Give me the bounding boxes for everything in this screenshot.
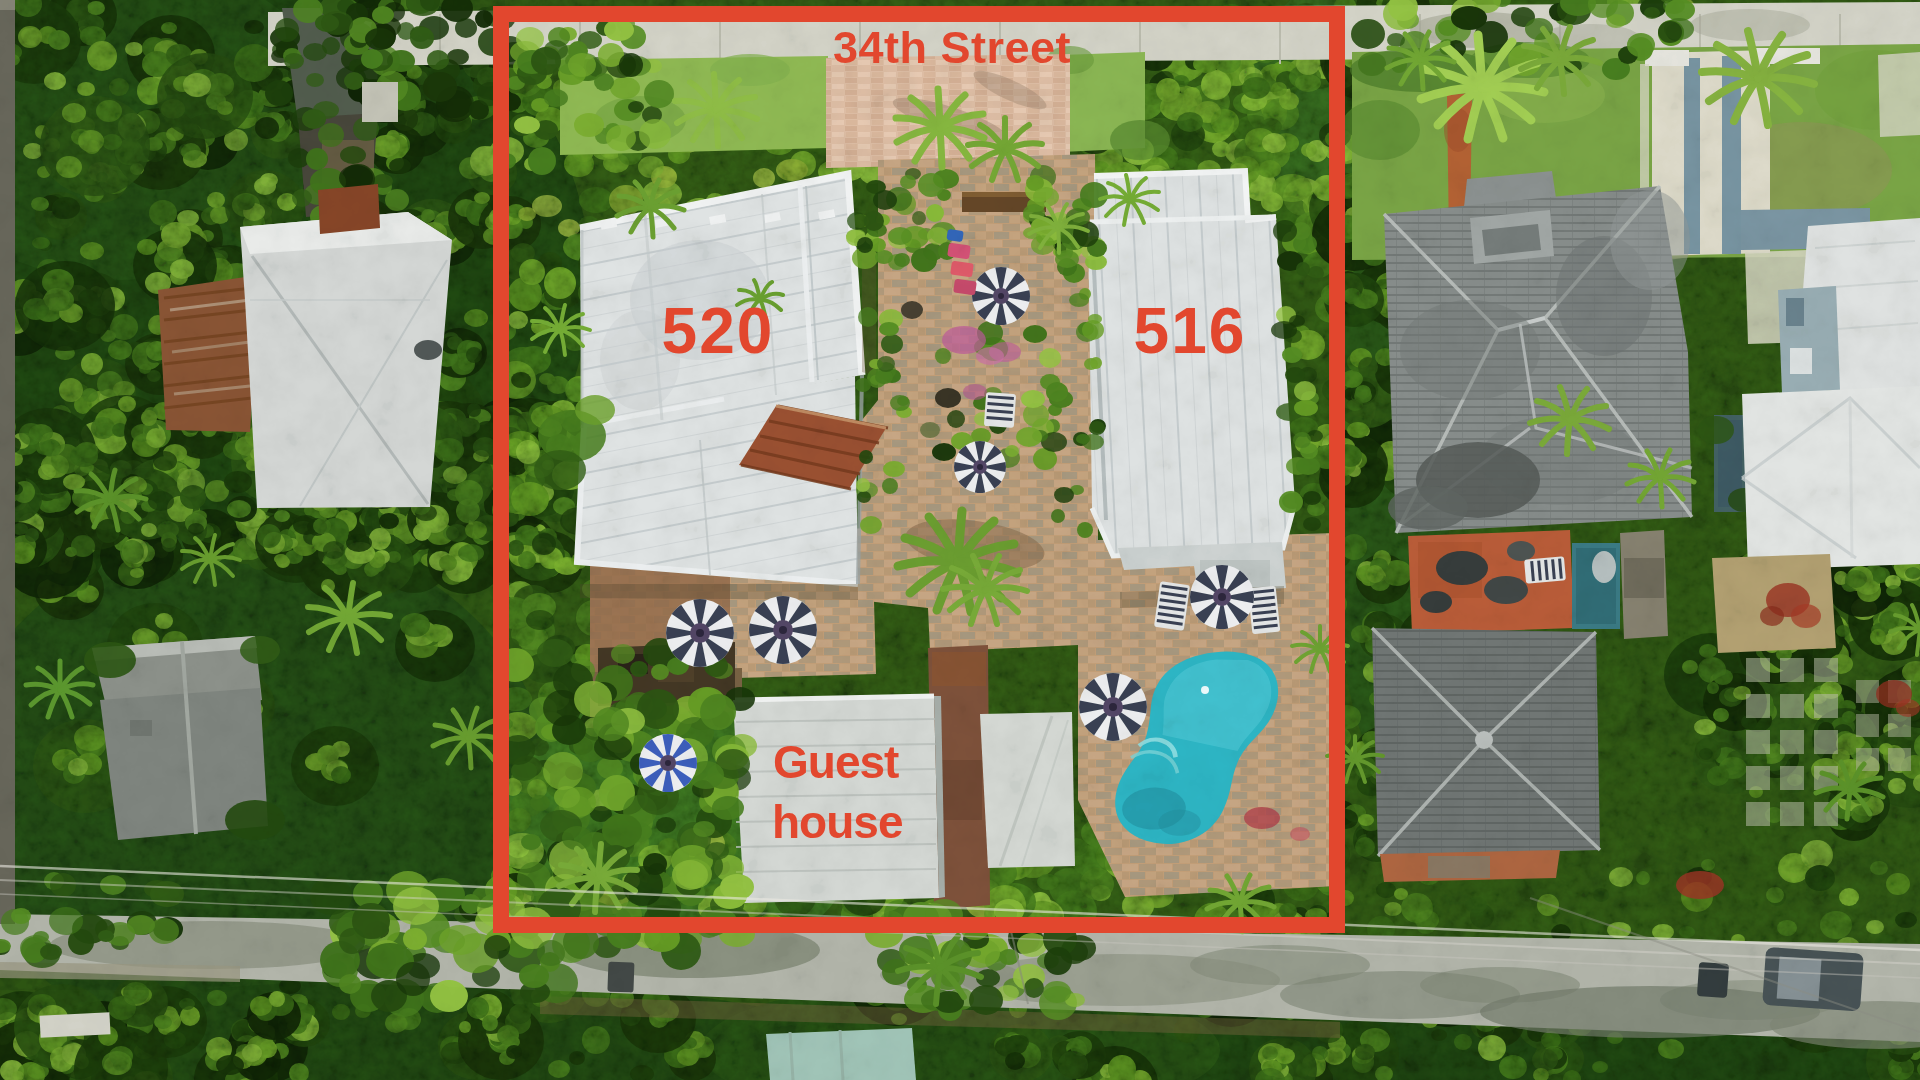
svg-text:house: house	[772, 796, 903, 848]
svg-text:520: 520	[662, 295, 775, 367]
svg-text:34th Street: 34th Street	[833, 22, 1071, 73]
svg-text:Guest: Guest	[773, 736, 899, 788]
svg-text:516: 516	[1134, 295, 1247, 367]
